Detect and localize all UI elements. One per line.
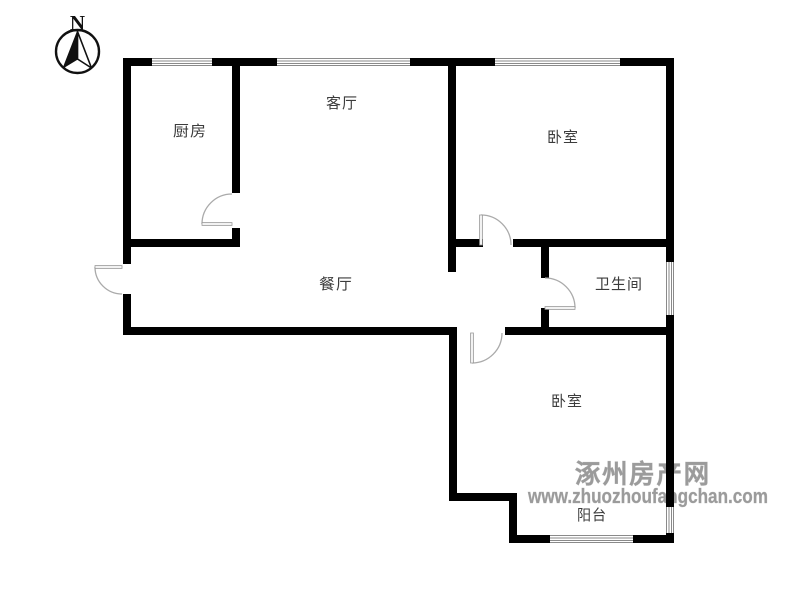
wall-bedroom-north-bottom-left [448, 239, 483, 247]
plan-background [0, 0, 800, 600]
wall-balcony-left [509, 497, 517, 543]
room-label-kitchen: 厨房 [173, 123, 207, 140]
wall-bedroom-south-bottom [449, 493, 517, 501]
room-label-bathroom: 卫生间 [595, 276, 643, 293]
room-label-bedroom-north: 卧室 [547, 129, 579, 146]
room-label-balcony: 阳台 [577, 507, 607, 524]
wall-bedroom-south-left [449, 327, 457, 501]
floor-plan-canvas: 涿州房产网 www.zhuozhoufangchan.com [0, 0, 800, 600]
watermark-site-name: 涿州房产网 [575, 459, 711, 489]
wall-bedroom-north-bottom-right [513, 239, 674, 247]
wall-kitchen-bottom [123, 239, 240, 247]
wall-left-exterior-upper [123, 58, 131, 264]
balcony-front-window [550, 535, 633, 543]
bathroom-window [666, 262, 674, 315]
wall-bathroom-left-lower [541, 308, 549, 335]
kitchen-window [152, 58, 212, 66]
bedroom-north-window [495, 58, 620, 66]
room-label-living-room: 客厅 [326, 95, 358, 112]
wall-kitchen-right-upper [232, 58, 240, 193]
wall-bathroom-left-upper [541, 243, 549, 278]
watermark-site-url: www.zhuozhoufangchan.com [527, 486, 768, 508]
room-label-bedroom-south: 卧室 [551, 393, 583, 410]
balcony-side-window [666, 507, 674, 533]
room-label-dining-room: 餐厅 [319, 276, 353, 293]
wall-dining-bottom [123, 327, 457, 335]
floor-plan-page: 涿州房产网 www.zhuozhoufangchan.com [0, 0, 800, 600]
wall-bathroom-bottom [505, 327, 674, 335]
living-room-window [277, 58, 410, 66]
